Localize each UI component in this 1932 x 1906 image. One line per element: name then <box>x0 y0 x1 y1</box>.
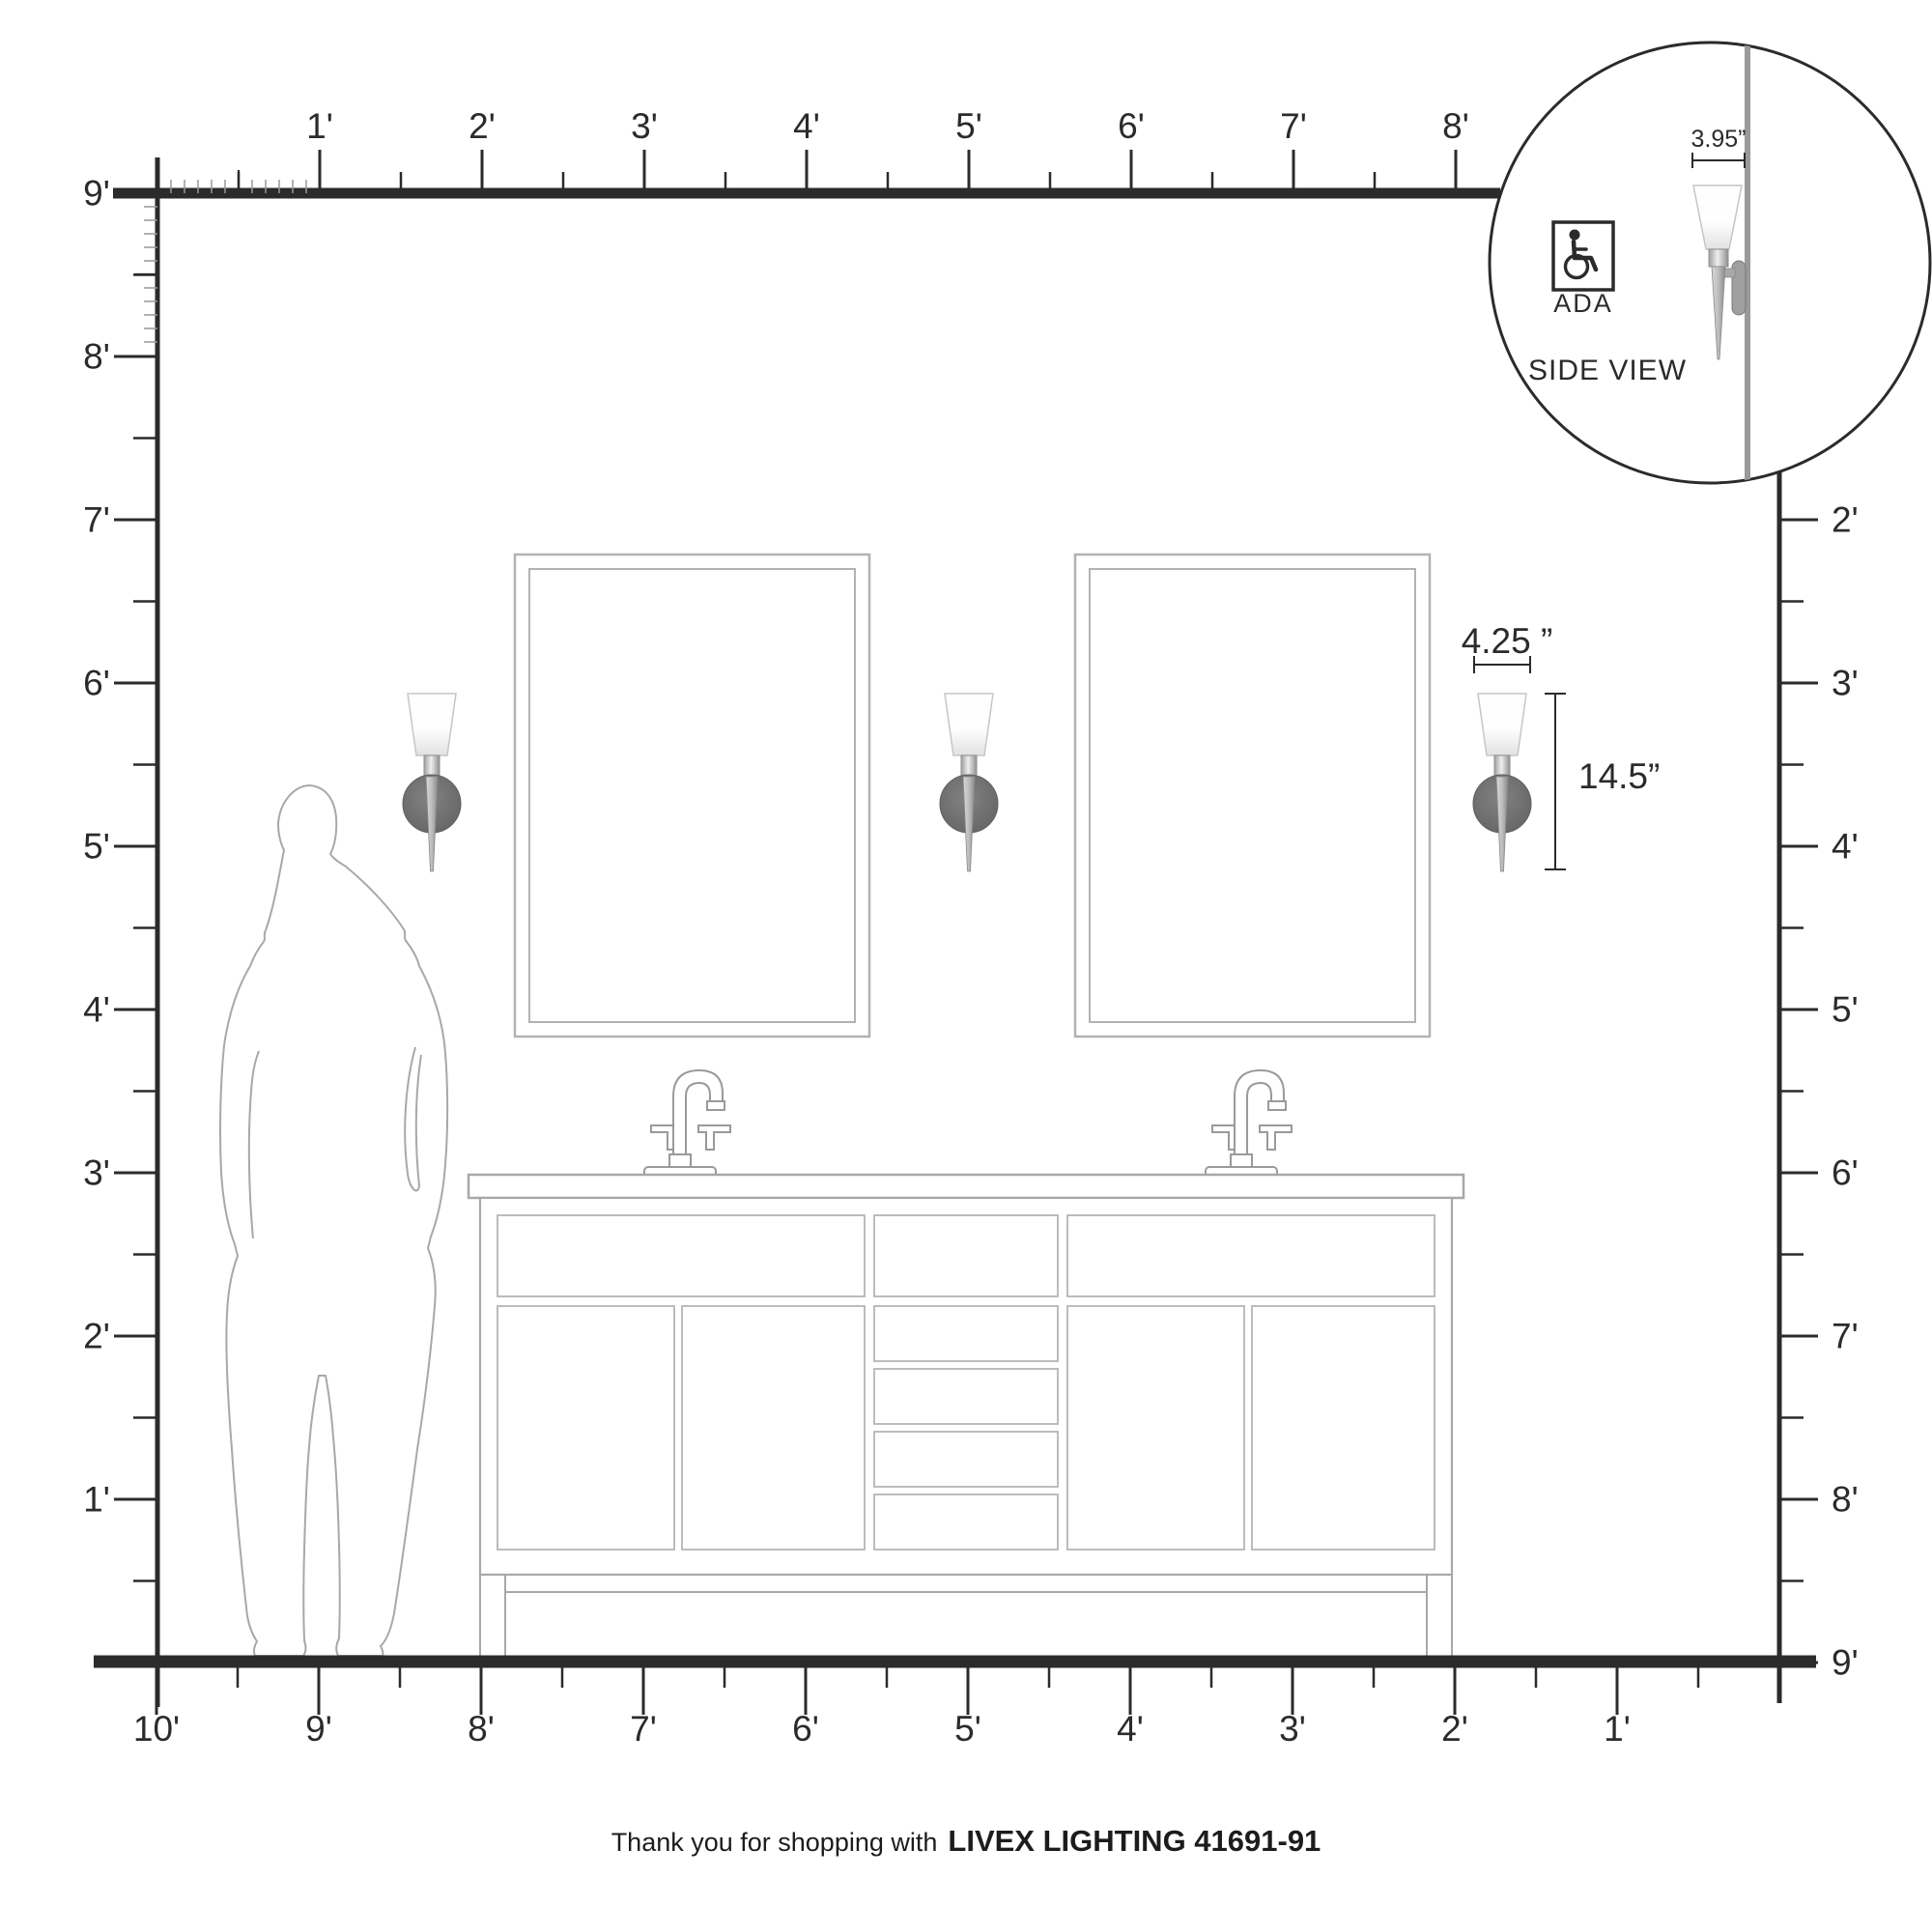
ruler-label: 9' <box>83 174 110 213</box>
ruler-label: 3' <box>83 1153 110 1193</box>
countertop <box>469 1175 1463 1198</box>
drawer-top-middle <box>874 1215 1058 1296</box>
ruler-top: 1'2'3'4'5'6'7'8' <box>171 106 1469 193</box>
sconce-socket-side <box>1709 249 1728 267</box>
ruler-label: 1' <box>83 1480 110 1520</box>
ruler-label: 7' <box>1832 1317 1859 1356</box>
ruler-label: 6' <box>83 664 110 703</box>
vanity-base <box>480 1575 1452 1656</box>
ruler-right: 2'3'4'5'6'7'8'9' <box>1779 439 1859 1683</box>
ruler-label: 6' <box>1832 1153 1859 1193</box>
ruler-label: 4' <box>1832 827 1859 867</box>
door-right-2 <box>1252 1306 1435 1550</box>
sconce-right <box>1473 694 1531 871</box>
ruler-label: 5' <box>83 827 110 867</box>
ruler-label: 8' <box>1832 1480 1859 1520</box>
depth-dimension-label: 3.95” <box>1691 126 1747 153</box>
ruler-label: 7' <box>83 500 110 540</box>
ruler-label: 2' <box>469 106 496 146</box>
ruler-label: 7' <box>630 1709 657 1749</box>
spec-sheet: 4.25 ” 14.5” 1'2'3'4'5'6'7'8' 9'8'7'6'5'… <box>0 0 1932 1906</box>
ruler-label: 4' <box>1117 1709 1144 1749</box>
drawer-mid-4 <box>874 1494 1058 1550</box>
footer-text: Thank you for shopping withLIVEX LIGHTIN… <box>611 1824 1321 1858</box>
door-left-2 <box>682 1306 865 1550</box>
drawer-top-left <box>497 1215 865 1296</box>
ruler-label: 8' <box>83 337 110 377</box>
ruler-label: 6' <box>1118 106 1145 146</box>
ruler-label: 1' <box>1604 1709 1631 1749</box>
mirror-left <box>515 555 869 1037</box>
ruler-label: 4' <box>83 990 110 1030</box>
drawer-mid-2 <box>874 1369 1058 1424</box>
ruler-label: 2' <box>83 1317 110 1356</box>
ruler-label: 5' <box>955 106 982 146</box>
drawer-top-right <box>1067 1215 1435 1296</box>
vanity-cabinet <box>469 1070 1463 1656</box>
faucet-left <box>644 1070 730 1178</box>
fixture-width-label: 4.25 ” <box>1462 621 1553 661</box>
door-left-1 <box>497 1306 674 1550</box>
faucet-right <box>1206 1070 1292 1178</box>
ruler-label: 6' <box>792 1709 819 1749</box>
mirror-right <box>1075 555 1430 1037</box>
sconce-left <box>403 694 461 871</box>
door-right-1 <box>1067 1306 1244 1550</box>
drawer-mid-1 <box>874 1306 1058 1361</box>
ruler-label: 5' <box>1832 990 1859 1030</box>
ruler-label: 3' <box>1832 664 1859 703</box>
ruler-label: 9' <box>1832 1643 1859 1683</box>
ruler-label: 7' <box>1280 106 1307 146</box>
ada-symbol: ADA <box>1553 222 1613 318</box>
drawer-mid-3 <box>874 1432 1058 1487</box>
fixture-height-label: 14.5” <box>1578 756 1660 796</box>
ruler-label: 5' <box>954 1709 981 1749</box>
scale-figure-woman <box>220 785 447 1656</box>
ruler-bottom: 1'2'3'4'5'6'7'8'9'10' <box>133 1662 1698 1749</box>
footer-brand: LIVEX LIGHTING 41691-91 <box>948 1824 1321 1858</box>
ruler-label: 3' <box>631 106 658 146</box>
side-view-caption: SIDE VIEW <box>1528 355 1687 386</box>
side-view-inset: 3.95” ADA SIDE VIEW <box>1490 39 1930 487</box>
cabinet-panels <box>497 1215 1435 1550</box>
ruler-label: 2' <box>1441 1709 1468 1749</box>
ruler-label: 8' <box>468 1709 495 1749</box>
height-dimension <box>1545 694 1566 869</box>
woman-silhouette <box>220 785 447 1656</box>
ruler-label: 3' <box>1279 1709 1306 1749</box>
ada-label: ADA <box>1553 289 1613 318</box>
ruler-label: 4' <box>793 106 820 146</box>
sconce-middle <box>940 694 998 871</box>
ruler-label: 1' <box>306 106 333 146</box>
ruler-label: 10' <box>133 1709 180 1749</box>
ruler-left: 9'8'7'6'5'4'3'2'1' <box>83 174 157 1581</box>
dimension-diagram: 4.25 ” 14.5” 1'2'3'4'5'6'7'8' 9'8'7'6'5'… <box>0 0 1932 1906</box>
ruler-label: 2' <box>1832 500 1859 540</box>
ruler-label: 8' <box>1442 106 1469 146</box>
footer-prefix: Thank you for shopping with <box>611 1828 938 1857</box>
ruler-label: 9' <box>305 1709 332 1749</box>
